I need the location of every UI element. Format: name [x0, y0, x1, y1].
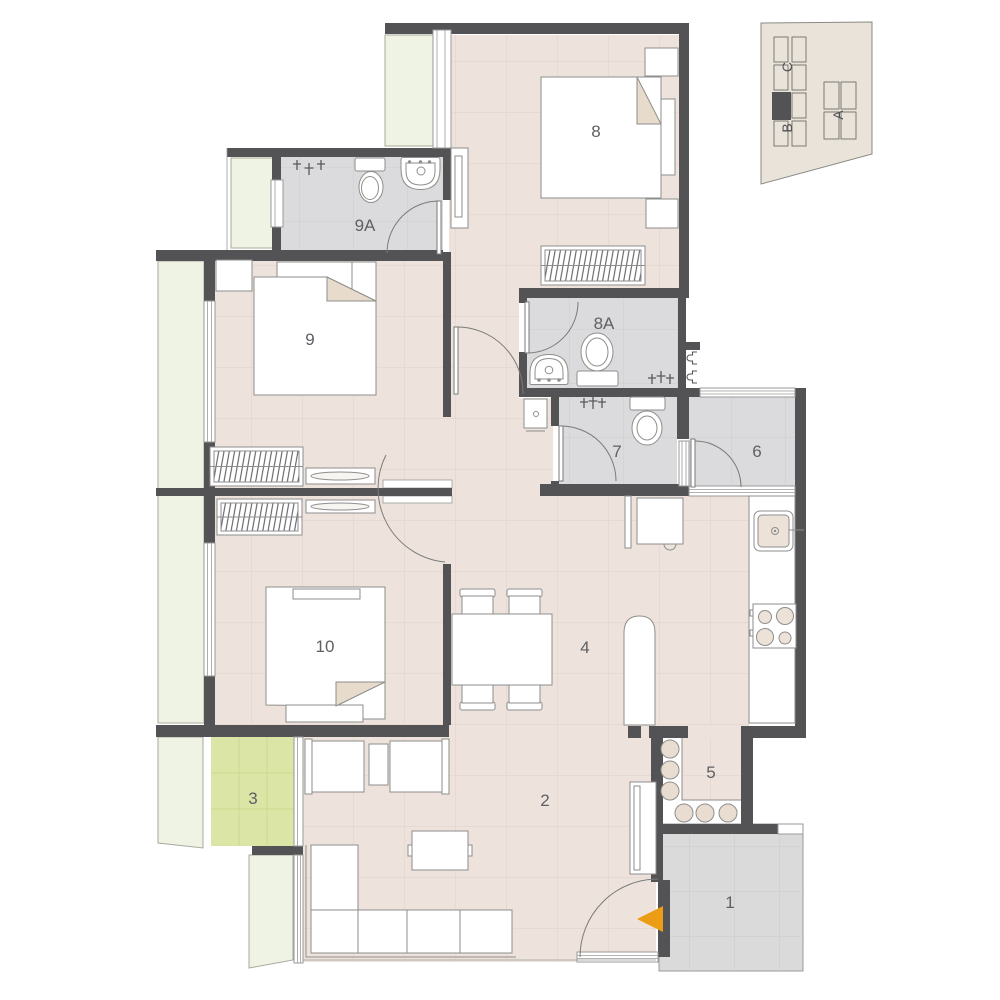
svg-text:5: 5 [706, 763, 715, 782]
svg-text:C: C [779, 62, 795, 72]
svg-text:A: A [830, 110, 846, 120]
svg-text:9A: 9A [355, 216, 376, 235]
svg-text:1: 1 [725, 893, 734, 912]
svg-text:9: 9 [305, 330, 314, 349]
svg-text:2: 2 [540, 791, 549, 810]
svg-text:3: 3 [248, 789, 257, 808]
svg-text:4: 4 [580, 638, 589, 657]
svg-text:B: B [779, 123, 795, 132]
svg-text:6: 6 [752, 442, 761, 461]
svg-text:8A: 8A [594, 314, 615, 333]
svg-text:8: 8 [591, 122, 600, 141]
svg-text:10: 10 [316, 637, 335, 656]
svg-text:7: 7 [612, 442, 621, 461]
